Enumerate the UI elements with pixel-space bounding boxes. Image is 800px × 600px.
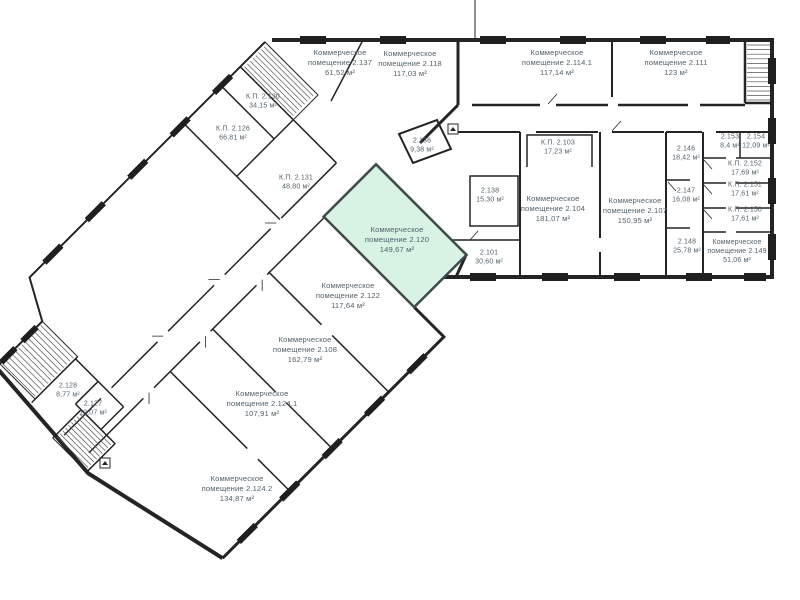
floor-plan-drawing [0, 0, 800, 600]
elevator-icon [100, 458, 110, 468]
stairs-hatch-wing [0, 47, 387, 468]
wing-piers [0, 74, 470, 573]
stairs-hatch-right [747, 45, 770, 100]
room-label-2-120[interactable]: Коммерческое помещение 2.120149,67 м² [365, 225, 429, 255]
door-marks [470, 94, 712, 240]
floor-plan: Коммерческое помещение 2.13761,52 м² Ком… [0, 0, 800, 600]
diagonal-wing-walls [0, 40, 504, 585]
door-marks-wing [117, 217, 304, 404]
elevator-icon [448, 124, 458, 134]
